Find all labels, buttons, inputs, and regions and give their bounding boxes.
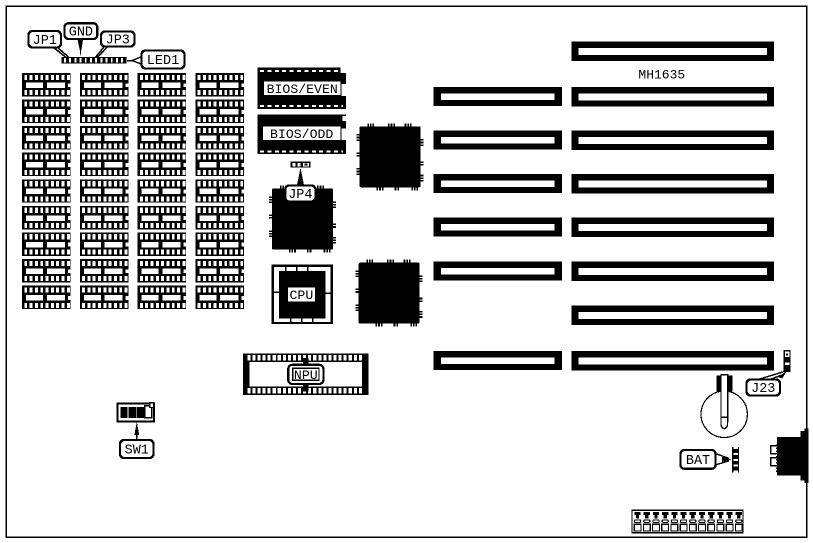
svg-text:J23: J23 [751,382,775,397]
svg-text:CPU: CPU [290,288,314,303]
svg-text:BIOS/EVEN: BIOS/EVEN [267,82,338,97]
svg-text:MH1635: MH1635 [638,67,685,82]
svg-text:JP1: JP1 [33,34,57,49]
svg-text:NPU: NPU [294,368,318,383]
svg-text:BAT: BAT [686,454,710,469]
svg-text:BIOS/ODD: BIOS/ODD [270,127,333,142]
svg-text:GND: GND [69,26,93,41]
svg-text:JP4: JP4 [288,188,312,203]
svg-text:JP3: JP3 [106,34,130,49]
svg-text:SW1: SW1 [125,444,149,459]
svg-text:LED1: LED1 [147,54,179,69]
